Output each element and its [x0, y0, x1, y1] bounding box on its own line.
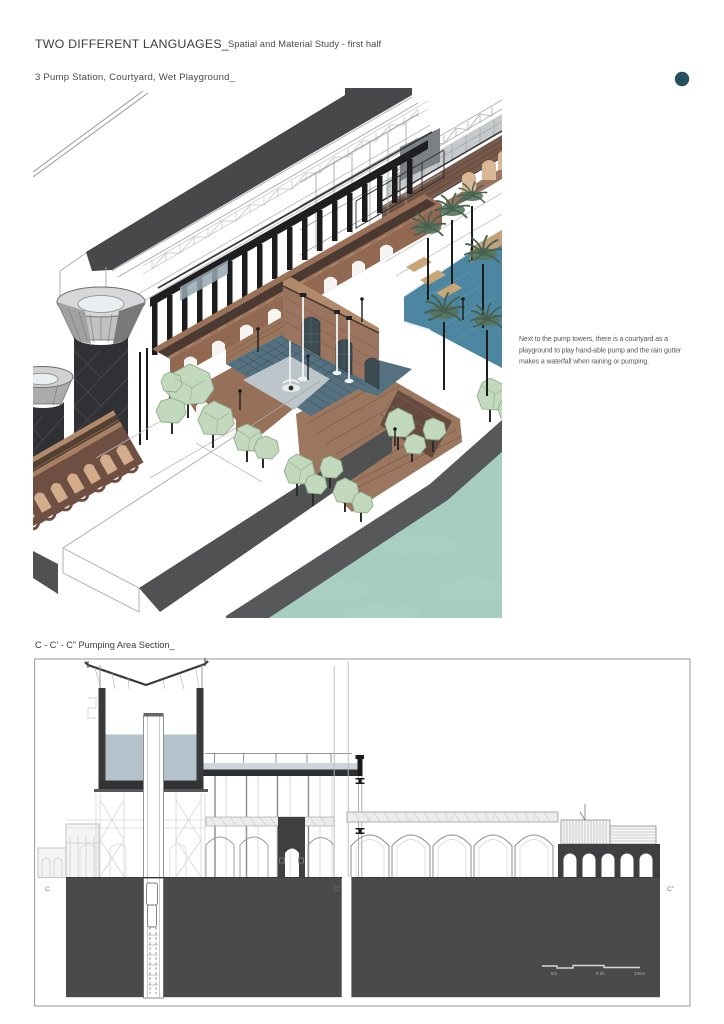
- svg-text:C: C: [45, 886, 50, 893]
- svg-text:Spatial and Material Study - f: Spatial and Material Study - first half: [228, 39, 382, 49]
- svg-text:TWO DIFFERENT LANGUAGES_: TWO DIFFERENT LANGUAGES_: [35, 37, 230, 51]
- svg-text:0.5h: 0.5h: [596, 971, 605, 976]
- svg-text:C”: C”: [667, 886, 674, 893]
- svg-text:3 Pump Station, Courtyard, We: 3 Pump Station, Courtyard, Wet Playgroun…: [35, 72, 236, 83]
- svg-text:100m: 100m: [634, 971, 646, 976]
- svg-text:5m: 5m: [551, 971, 558, 976]
- svg-text:C - C’ - C” Pumping Area Secti: C - C’ - C” Pumping Area Section_: [35, 640, 175, 650]
- svg-text:C’: C’: [334, 886, 341, 893]
